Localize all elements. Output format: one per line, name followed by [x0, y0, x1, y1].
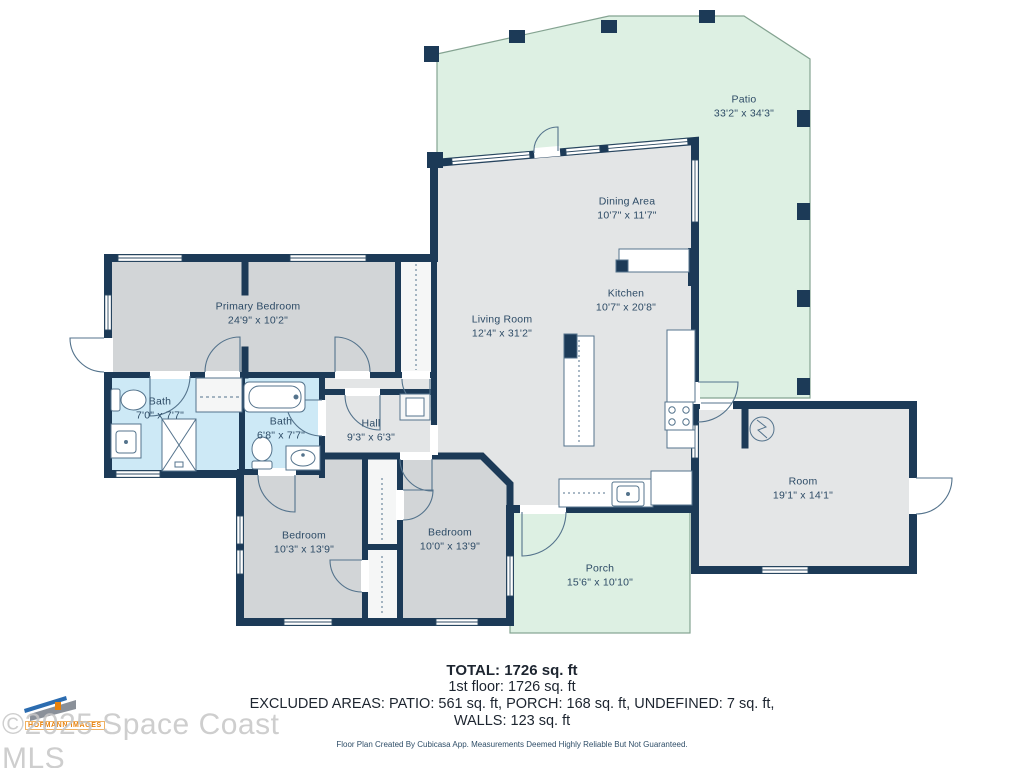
kitchen-island: [564, 334, 594, 446]
room-label-bedroom-1: Bedroom10'3" x 13'9": [274, 529, 334, 556]
sink-vanity-icon: [111, 424, 141, 458]
floor-plan-drawing: [0, 0, 1024, 768]
bathtub-icon: [244, 382, 305, 412]
summary-total: TOTAL: 1726 sq. ft: [0, 662, 1024, 679]
room-label-porch: Porch15'6" x 10'10": [567, 562, 633, 589]
hall-closet: [400, 394, 430, 420]
dining-peninsula: [616, 249, 689, 272]
room-label-living: Living Room12'4" x 31'2": [472, 313, 533, 340]
room-label-bedroom-2: Bedroom10'0" x 13'9": [420, 526, 480, 553]
kitchen-sink-icon: [612, 482, 644, 506]
room-label-kitchen: Kitchen10'7" x 20'8": [596, 287, 656, 314]
sink-vanity-icon: [286, 446, 320, 470]
watermark: HOFMANN IMAGES ©2025 Space Coast MLS: [0, 690, 320, 760]
shower-icon: [162, 419, 196, 471]
room-label-bath-1: Bath7'0" x 7'7": [136, 395, 184, 422]
floor-plan-page: Patio33'2" x 34'3" Dining Area10'7" x 11…: [0, 0, 1024, 768]
room-label-hall: Hall9'3" x 6'3": [347, 417, 395, 444]
water-heater-icon: [750, 417, 774, 441]
corner-post: [427, 152, 443, 168]
room-label-dining: Dining Area10'7" x 11'7": [597, 195, 656, 222]
room-label-primary-bedroom: Primary Bedroom24'9" x 10'2": [216, 300, 301, 327]
bath-closet: [196, 378, 242, 412]
watermark-copyright: ©2025 Space Coast MLS: [2, 708, 320, 768]
stove-icon: [665, 402, 693, 430]
room-label-room: Room19'1" x 14'1": [773, 475, 833, 502]
room-label-patio: Patio33'2" x 34'3": [714, 93, 774, 120]
room-label-bath-2: Bath6'8" x 7'7": [257, 415, 305, 442]
kitchen-cabinet: [651, 471, 692, 505]
